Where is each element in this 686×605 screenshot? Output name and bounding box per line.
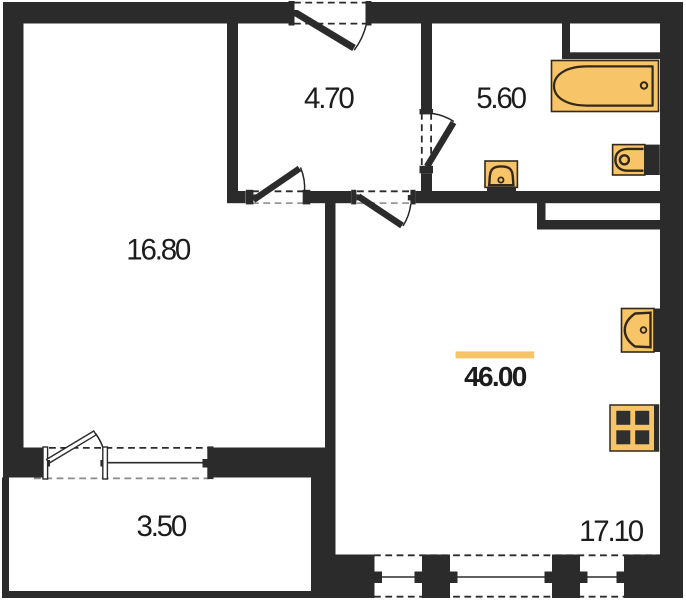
svg-text:3.50: 3.50 — [136, 510, 186, 543]
svg-text:16.80: 16.80 — [126, 233, 191, 266]
svg-text:46.00: 46.00 — [464, 361, 527, 392]
svg-text:5.60: 5.60 — [476, 82, 526, 115]
svg-text:17.10: 17.10 — [579, 515, 644, 548]
svg-text:4.70: 4.70 — [304, 82, 354, 115]
